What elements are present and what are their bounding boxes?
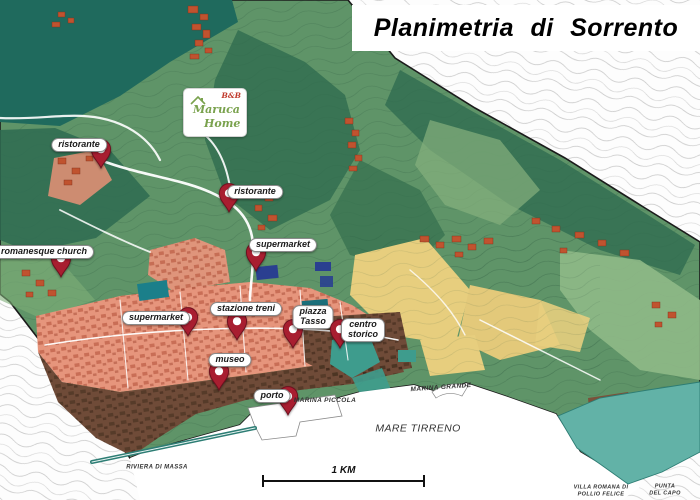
scale-line	[262, 480, 425, 482]
place-label-villa-romana-di-pollio-felice: VILLA ROMANA DI POLLIO FELICE	[574, 484, 629, 497]
place-label-riviera-di-massa: RIVIERA DI MASSA	[126, 464, 188, 471]
place-label-punta-del-capo: PUNTA DEL CAPO	[649, 483, 681, 496]
pin-layer: ristoranteristorantesupermarketromanesqu…	[0, 0, 700, 500]
scale-bar: 1 KM	[262, 468, 425, 486]
pin-label-ristorante-2: ristorante	[227, 185, 283, 199]
pin-label-supermarket-2: supermarket	[122, 311, 190, 325]
pin-label-supermarket-1: supermarket	[249, 238, 317, 252]
scale-label: 1 KM	[332, 465, 356, 476]
pin-label-museo: museo	[208, 353, 251, 367]
place-label-marina-grande: MARINA GRANDE	[410, 382, 471, 394]
pin-label-romanesque-church: romanesque church	[0, 245, 94, 259]
pin-label-centro-storico: centro storico	[341, 318, 385, 342]
scale-tick	[423, 475, 425, 487]
place-label-mare-tirreno: MARE TIRRENO	[375, 423, 460, 436]
pin-label-piazza-tasso: piazza Tasso	[292, 305, 333, 329]
pin-label-stazione-treni: stazione treni	[210, 302, 282, 316]
pin-label-porto: porto	[254, 389, 291, 403]
pin-label-ristorante-1: ristorante	[51, 138, 107, 152]
place-label-marina-piccola: MARINA PICCOLA	[294, 397, 356, 405]
map-screenshot: Planimetria di Sorrento B&B Maruca Home …	[0, 0, 700, 500]
